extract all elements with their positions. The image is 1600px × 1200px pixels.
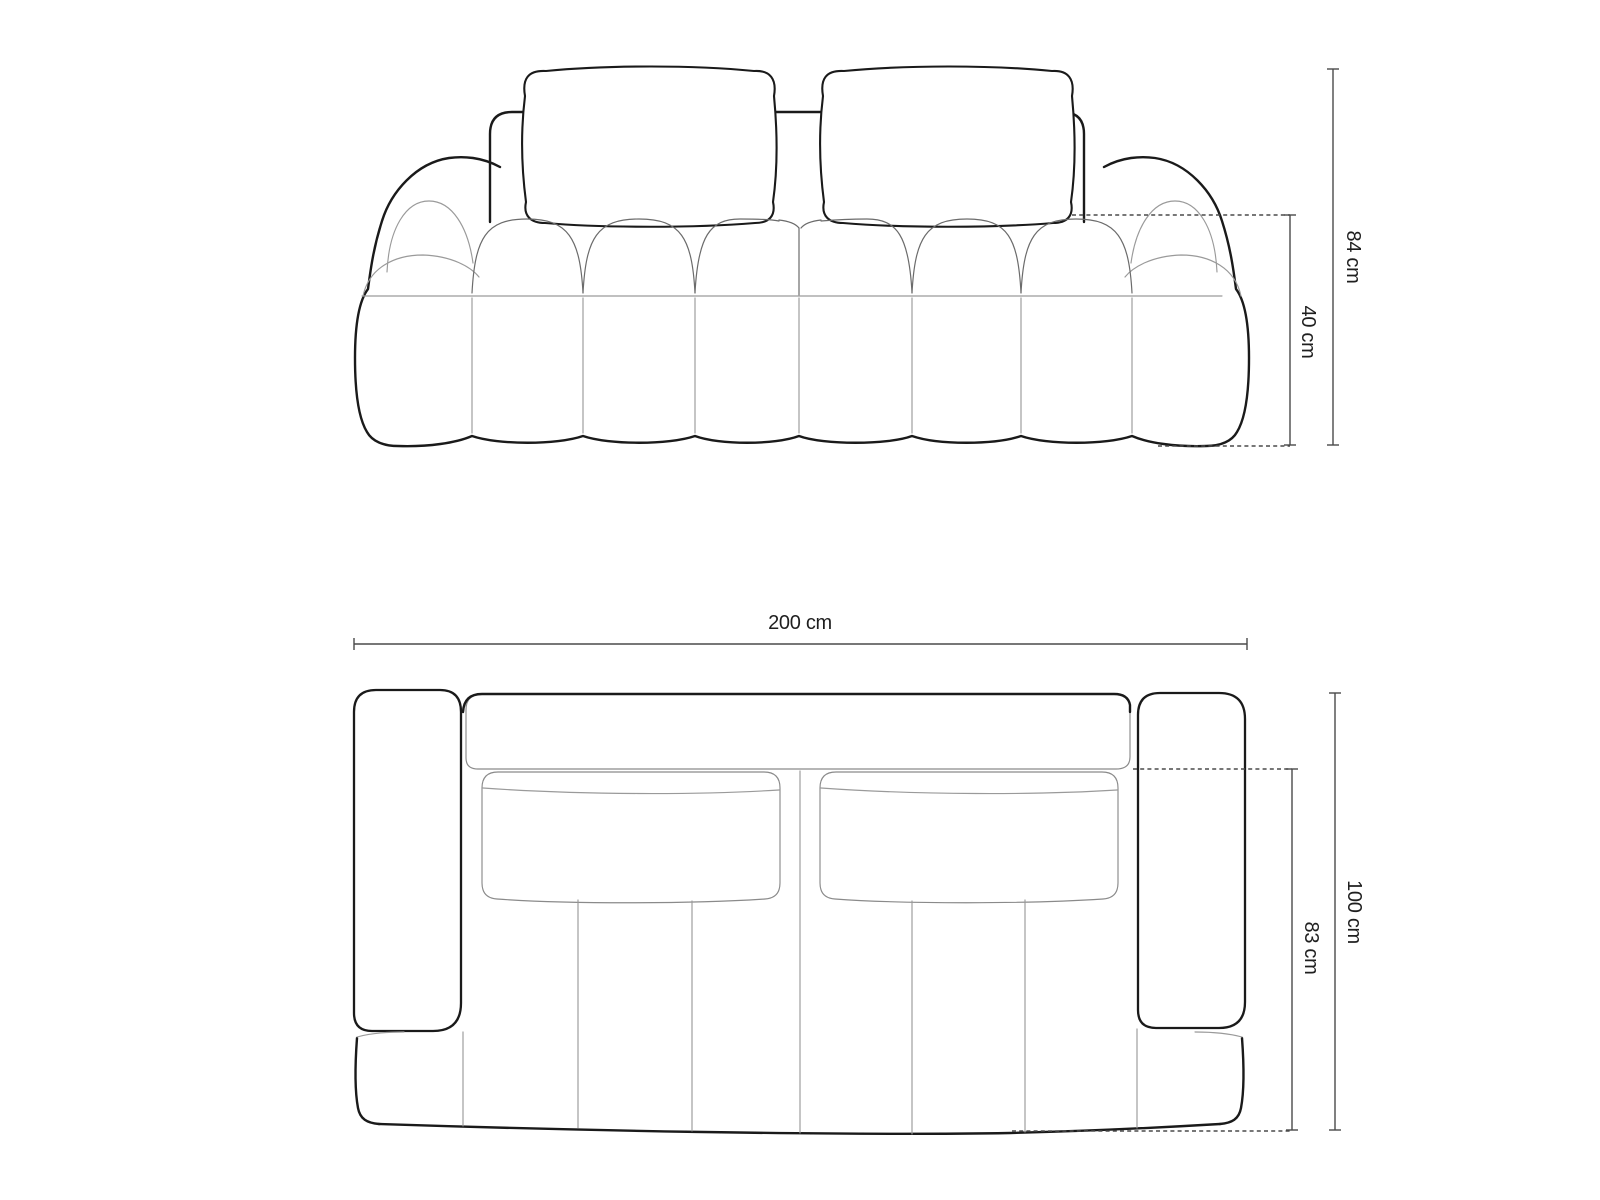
top-right-arm	[1138, 693, 1245, 1028]
front-view: 40 cm 84 cm	[355, 67, 1364, 447]
seat-depth-dimension-label: 83 cm	[1300, 922, 1322, 975]
top-right-front-corner-seam	[1195, 1032, 1242, 1037]
top-left-arm	[354, 690, 461, 1031]
front-pillow-right	[820, 67, 1074, 227]
top-view: 200 cm	[354, 612, 1365, 1134]
sofa-dimension-diagram: 40 cm 84 cm 200 cm	[0, 0, 1600, 1200]
total-height-dimension-label: 84 cm	[1342, 231, 1364, 284]
seat-height-dimension-label: 40 cm	[1297, 306, 1319, 359]
front-channel-seams	[472, 298, 1132, 433]
front-left-armrest-seam	[363, 255, 479, 296]
total-depth-dimension: 100 cm	[1329, 693, 1365, 1130]
seat-height-dimension: 40 cm	[1284, 215, 1319, 445]
front-pillow-left	[522, 67, 776, 227]
top-right-front-corner	[1220, 1038, 1243, 1124]
total-depth-dimension-label: 100 cm	[1343, 880, 1365, 944]
front-right-armrest-seam	[1125, 255, 1241, 296]
width-dimension: 200 cm	[354, 612, 1247, 650]
width-dimension-label: 200 cm	[768, 612, 832, 634]
top-left-front-corner-seam	[357, 1032, 404, 1037]
top-backrest	[466, 694, 1130, 769]
front-seat-bumps	[472, 219, 1132, 295]
total-height-dimension: 84 cm	[1327, 69, 1364, 445]
top-left-front-corner	[356, 1038, 379, 1124]
seat-depth-dimension: 83 cm	[1286, 769, 1322, 1130]
front-right-arm-inner-seam	[1131, 201, 1217, 272]
front-left-arm-inner-seam	[387, 201, 473, 272]
diagram-svg: 40 cm 84 cm 200 cm	[0, 0, 1600, 1200]
